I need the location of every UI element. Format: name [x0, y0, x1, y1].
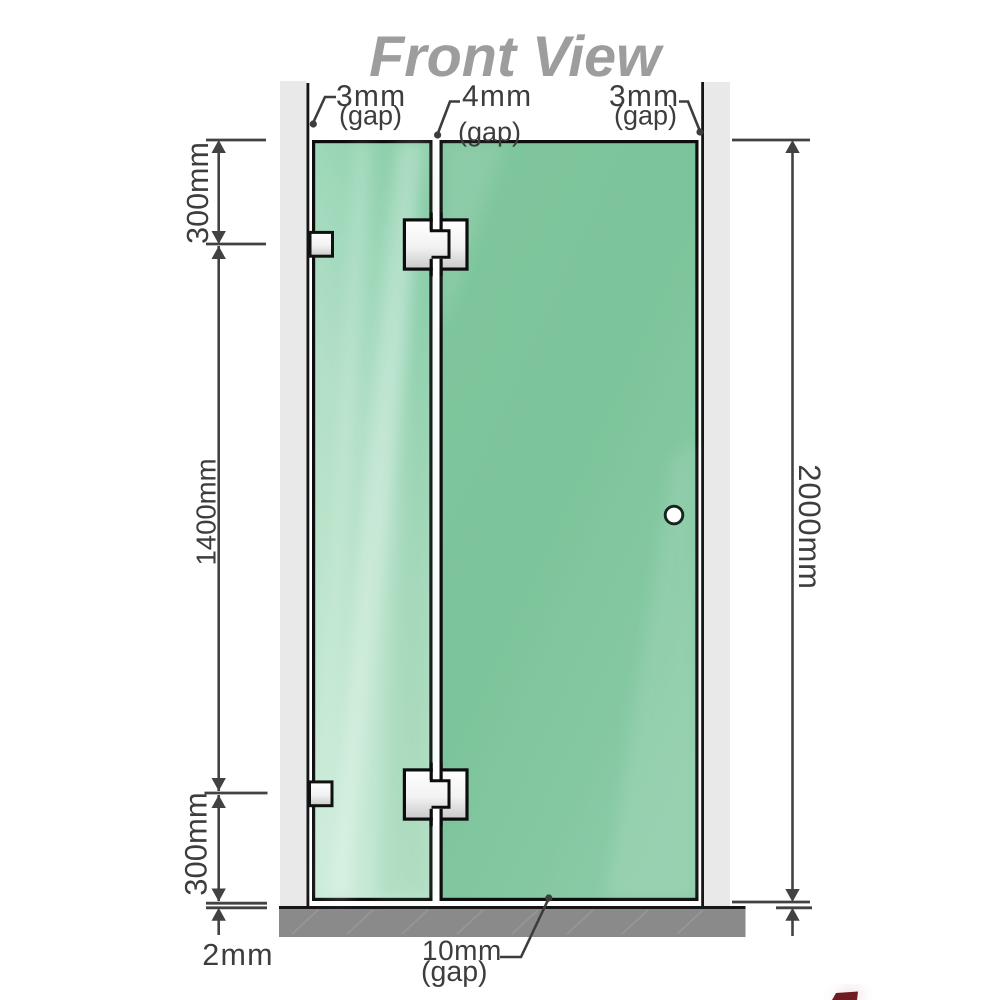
- svg-text:(gap): (gap): [458, 117, 521, 147]
- svg-text:1400mm: 1400mm: [191, 459, 222, 566]
- svg-text:(gap): (gap): [339, 101, 402, 131]
- svg-text:4mm: 4mm: [462, 80, 532, 113]
- svg-text:2mm: 2mm: [202, 938, 273, 972]
- svg-text:(gap): (gap): [421, 956, 488, 988]
- svg-text:300mm: 300mm: [181, 142, 215, 244]
- svg-text:2000mm: 2000mm: [792, 464, 827, 589]
- svg-text:(gap): (gap): [614, 101, 677, 131]
- svg-text:300mm: 300mm: [179, 792, 214, 895]
